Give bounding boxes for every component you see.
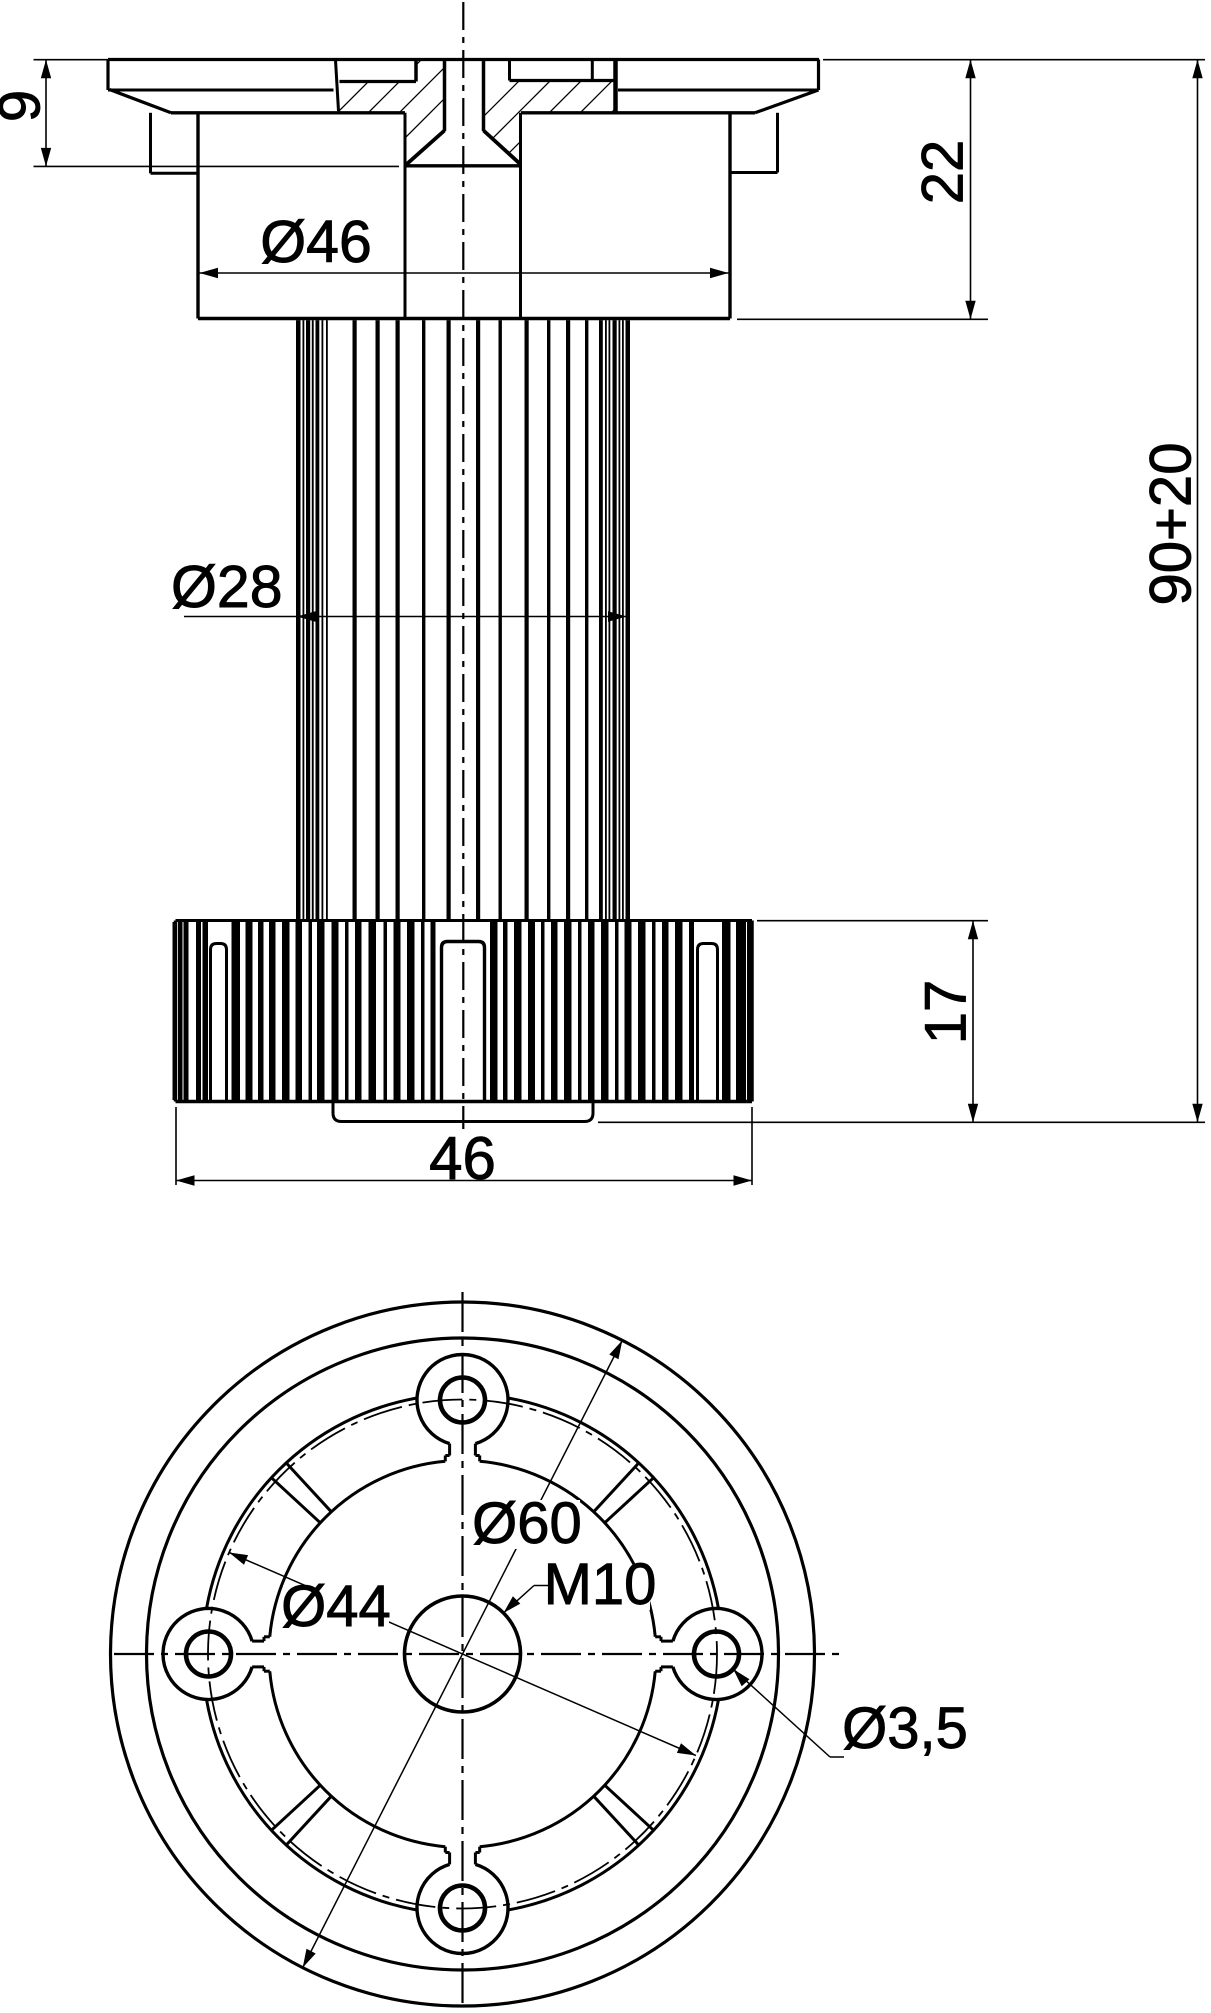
svg-text:Ø3,5: Ø3,5 (842, 1696, 968, 1761)
svg-text:Ø60: Ø60 (472, 1491, 582, 1556)
svg-text:46: 46 (429, 1125, 496, 1192)
svg-text:M10: M10 (544, 1552, 657, 1617)
svg-text:22: 22 (911, 140, 976, 205)
svg-text:Ø46: Ø46 (260, 209, 372, 275)
svg-text:90+20: 90+20 (1139, 443, 1204, 606)
svg-text:17: 17 (914, 980, 979, 1045)
svg-text:Ø28: Ø28 (171, 554, 283, 620)
svg-text:Ø44: Ø44 (281, 1574, 391, 1639)
svg-text:9: 9 (0, 90, 53, 122)
